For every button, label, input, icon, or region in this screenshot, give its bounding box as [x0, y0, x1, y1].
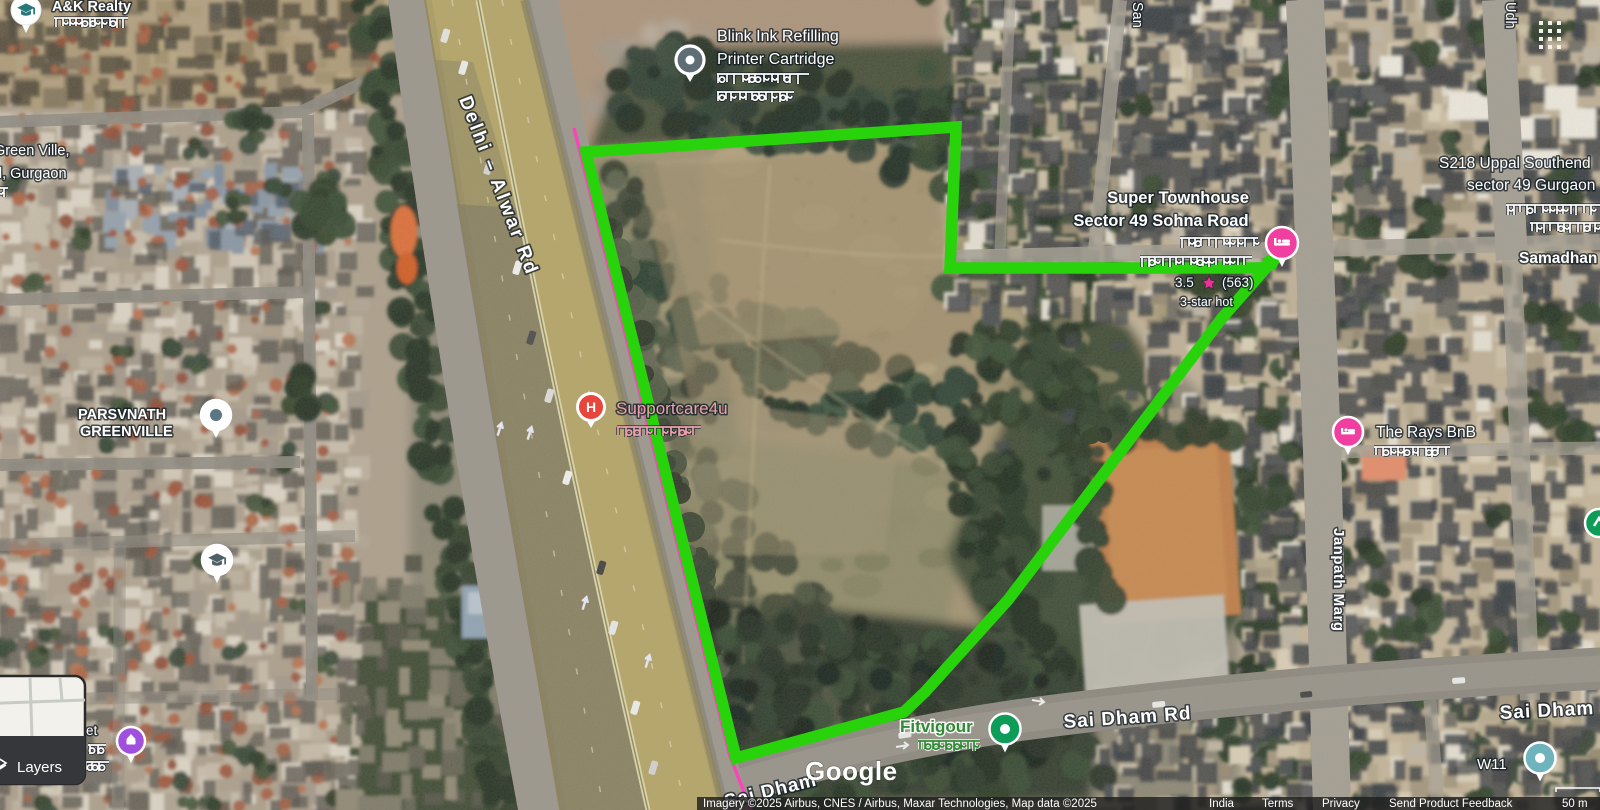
svg-text:A&K Realty: A&K Realty [52, 0, 131, 15]
svg-text:Udh: Udh [1502, 2, 1518, 29]
svg-text:PARSVNATH: PARSVNATH [78, 407, 166, 423]
svg-text:Terms: Terms [1262, 798, 1294, 810]
svg-text:Layers: Layers [17, 759, 62, 776]
svg-text:Samadhan: Samadhan [1519, 250, 1597, 267]
svg-text:Super Townhouse: Super Townhouse [1107, 189, 1249, 207]
svg-text:Blink Ink Refilling: Blink Ink Refilling [717, 28, 839, 45]
svg-text:The Rays BnB: The Rays BnB [1376, 424, 1476, 441]
svg-text:3.5: 3.5 [1175, 275, 1194, 290]
svg-text:Printer Cartridge: Printer Cartridge [717, 51, 834, 68]
svg-text:50 m: 50 m [1562, 798, 1588, 810]
svg-text:Send Product Feedback: Send Product Feedback [1389, 798, 1513, 810]
svg-text:S218 Uppal Southend: S218 Uppal Southend [1439, 155, 1591, 172]
svg-text:et: et [86, 723, 98, 738]
svg-text:Fitvigour: Fitvigour [900, 717, 973, 736]
svg-text:Privacy: Privacy [1322, 798, 1360, 810]
svg-text:Green Ville,: Green Ville, [0, 143, 70, 159]
svg-text:San: San [1129, 2, 1145, 28]
svg-text:Janpath Marg: Janpath Marg [1330, 528, 1347, 632]
svg-text:GREENVILLE: GREENVILLE [80, 424, 173, 440]
svg-text:Google: Google [805, 756, 898, 786]
svg-text:sector 49 Gurgaon: sector 49 Gurgaon [1467, 177, 1595, 194]
svg-text:India: India [1209, 798, 1235, 810]
svg-text:W11: W11 [1477, 756, 1507, 773]
svg-text:H: H [586, 399, 596, 415]
svg-text:(563): (563) [1222, 275, 1254, 290]
svg-text:3-star hot: 3-star hot [1180, 295, 1233, 309]
svg-text:Sector 49 Sohna Road: Sector 49 Sohna Road [1073, 212, 1248, 230]
svg-text:d, Gurgaon: d, Gurgaon [0, 166, 67, 182]
svg-text:Imagery ©2025 Airbus, CNES / A: Imagery ©2025 Airbus, CNES / Airbus, Max… [703, 798, 1097, 810]
svg-text:Supportcare4u: Supportcare4u [616, 399, 728, 418]
